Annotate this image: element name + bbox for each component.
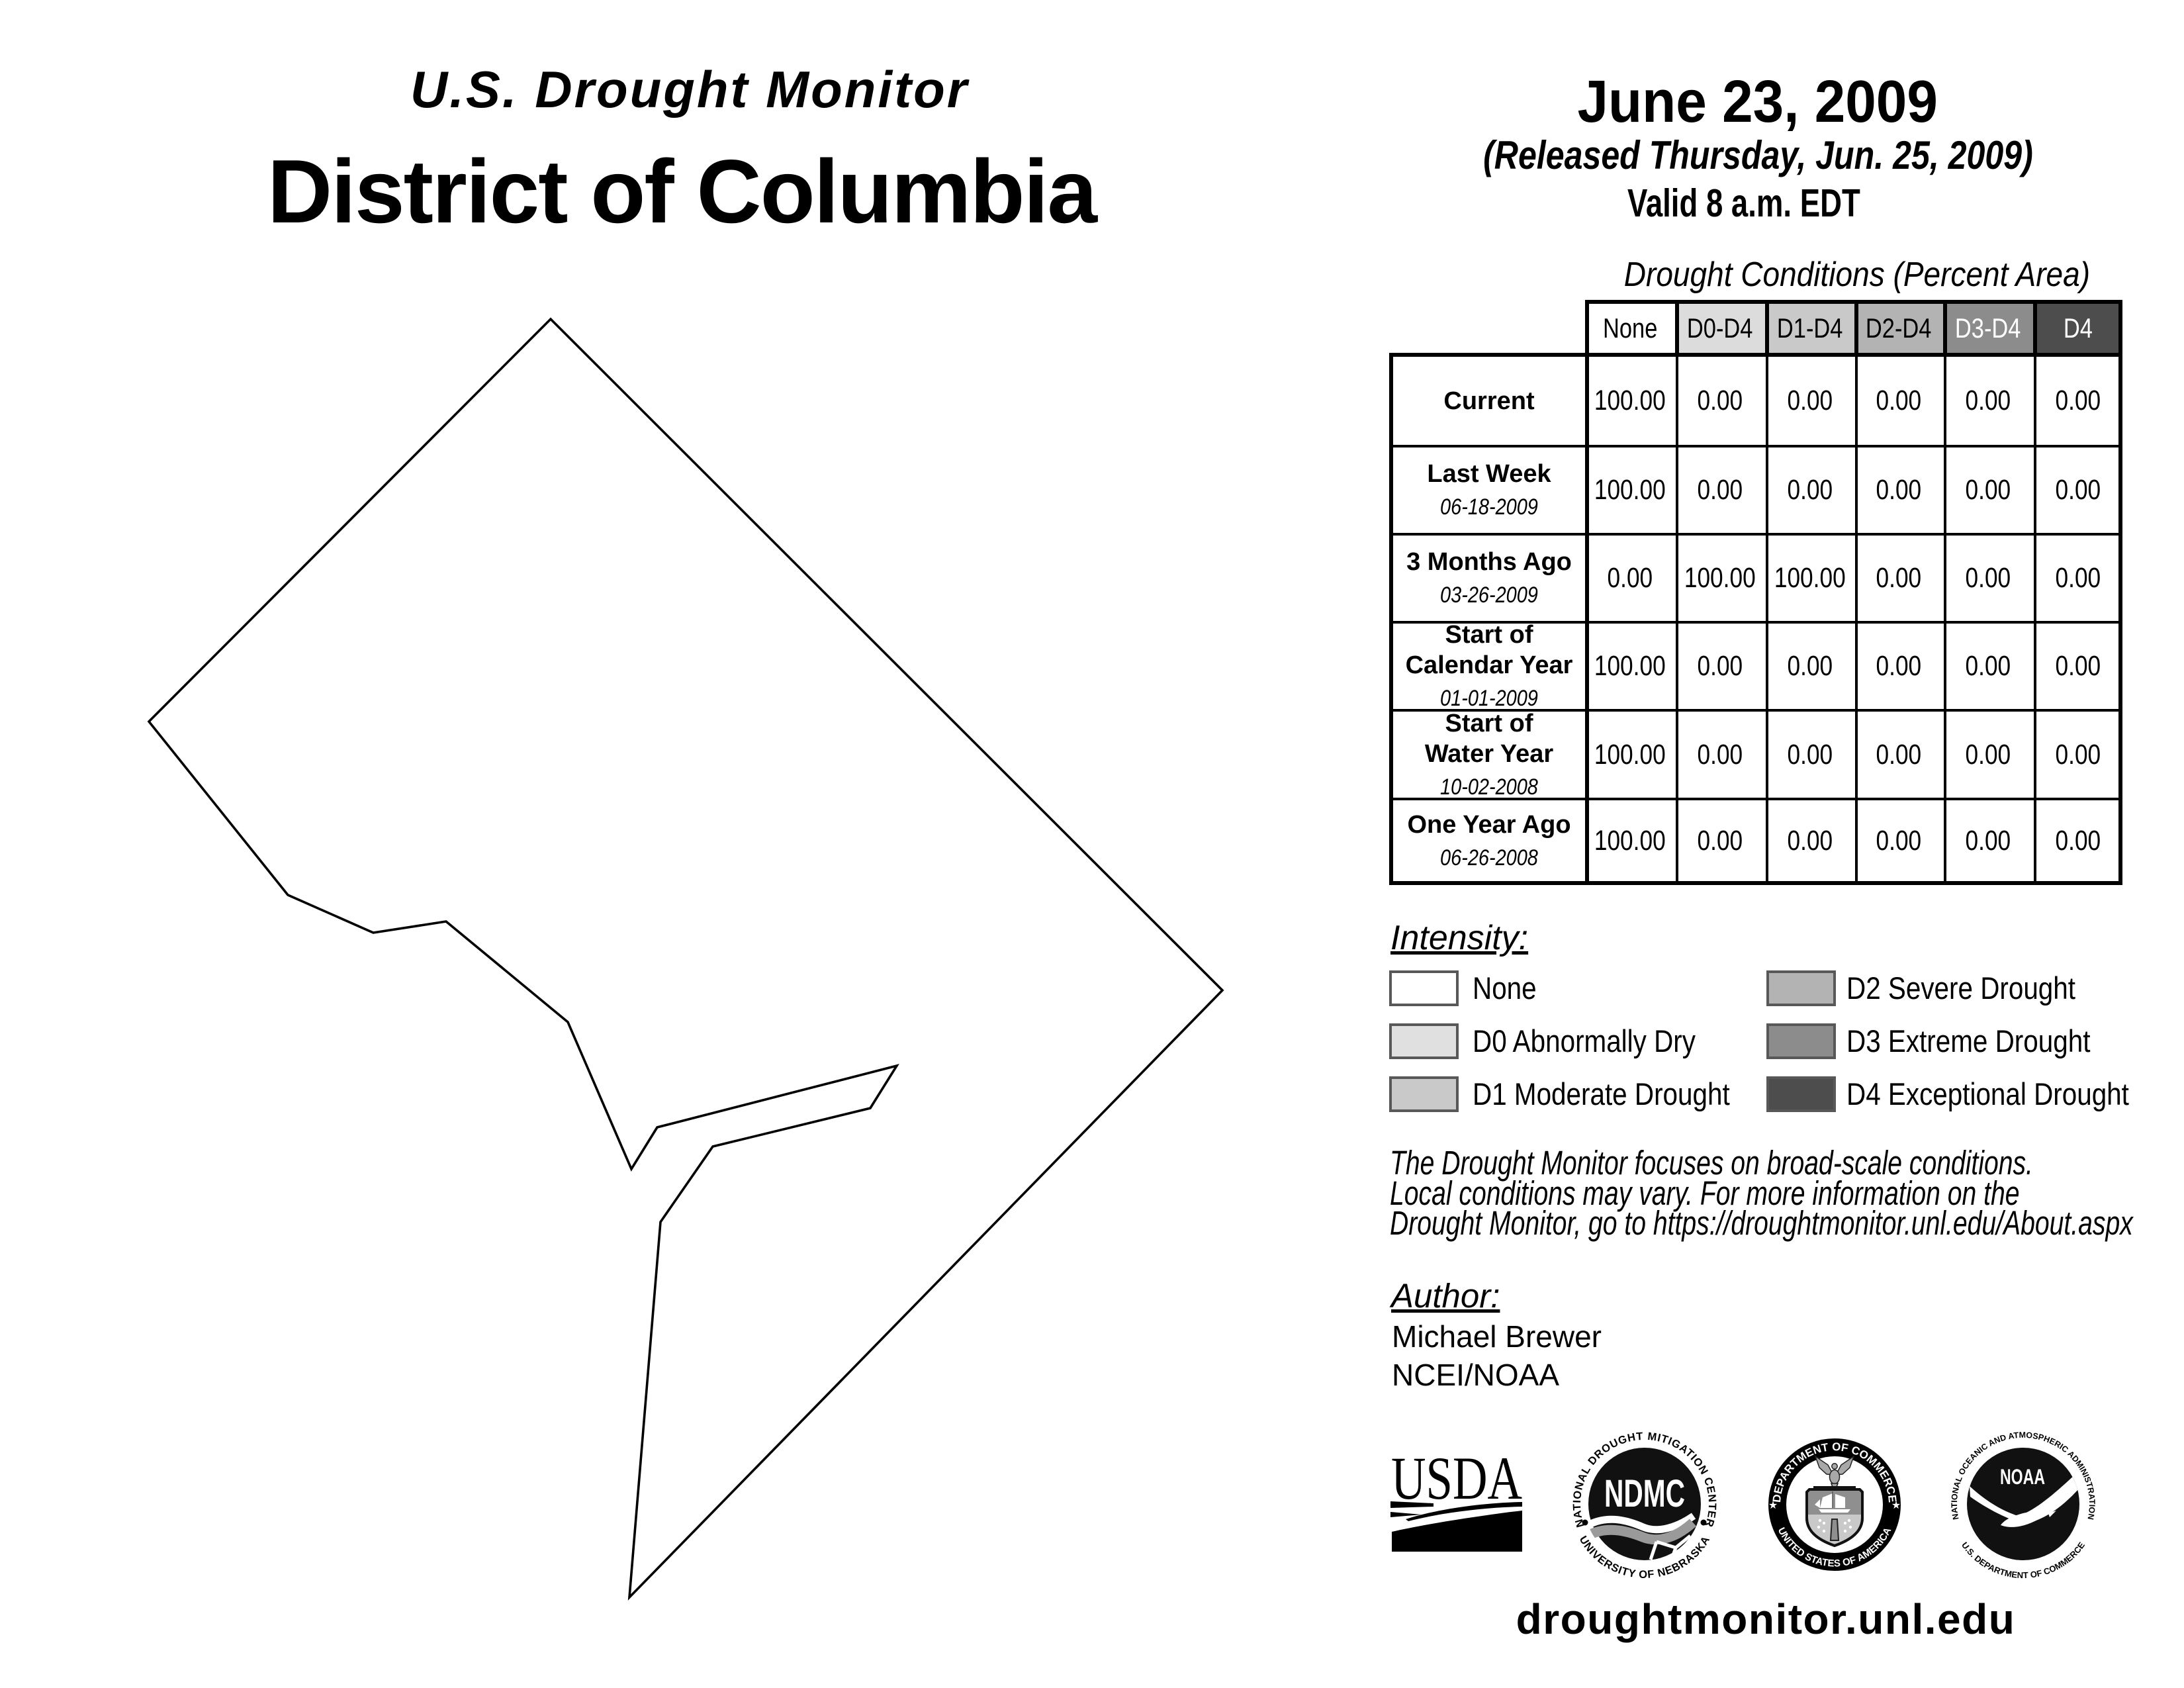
svg-text:★: ★ xyxy=(1768,1500,1778,1511)
svg-text:NOAA: NOAA xyxy=(2000,1465,2045,1489)
svg-text:★: ★ xyxy=(1891,1500,1901,1511)
svg-text:NDMC: NDMC xyxy=(1604,1472,1685,1515)
